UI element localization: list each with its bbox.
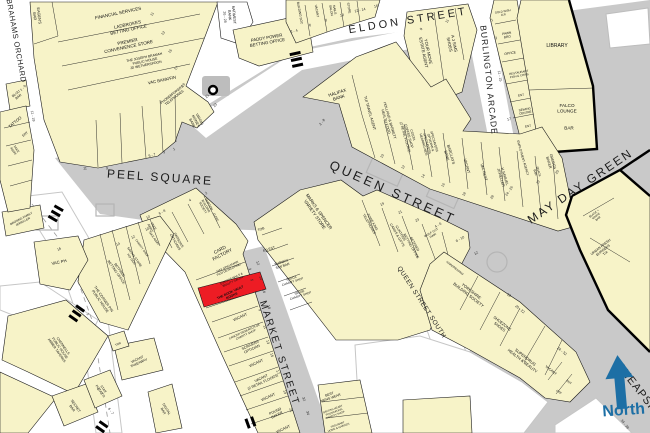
- unit-label: LIBRARY: [546, 43, 568, 49]
- post-marker-icon: [209, 86, 217, 94]
- street-number: 9: [106, 166, 108, 170]
- goad-plan-map: ABRAHAMS ORCHARDELDON STREETBURLINGTON A…: [0, 0, 650, 433]
- street-number: 11: [83, 166, 87, 170]
- unit-label: FALCOLOUNGE: [557, 103, 576, 113]
- street-number: 10: [340, 13, 345, 18]
- street-number: 17: [507, 117, 512, 122]
- north-label: North: [602, 401, 646, 421]
- street-number: 16: [374, 4, 379, 9]
- unit-label: BAR: [564, 126, 574, 131]
- map-canvas[interactable]: ABRAHAMS ORCHARDELDON STREETBURLINGTON A…: [0, 0, 650, 433]
